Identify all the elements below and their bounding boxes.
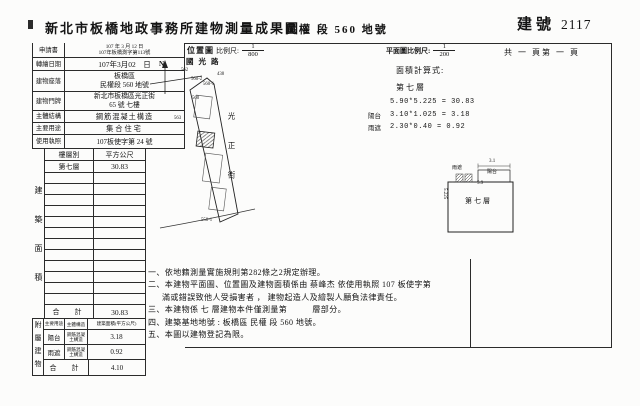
floor-table-empty-row — [45, 272, 145, 283]
annex-side-label-cell: 附屬建物 — [33, 319, 44, 375]
empty-cell — [45, 206, 94, 216]
street-name-top: 國光路 — [186, 56, 224, 67]
row-label: 使用執照 — [33, 135, 65, 148]
empty-cell — [94, 272, 145, 282]
empty-cell — [45, 239, 94, 249]
bottom-rule — [185, 347, 612, 348]
area-formulas: 5.90*5.225 = 30.83 陽台 3.10*1.025 = 3.18 … — [368, 96, 475, 134]
empty-cell — [45, 195, 94, 205]
note-line: 五、本圖以建物登記為限。 — [148, 329, 478, 341]
address-number: 65 號 七樓 — [109, 101, 140, 110]
row-label: 建物座落 — [33, 71, 65, 91]
empty-cell — [45, 173, 94, 183]
floor-table-empty-row — [45, 261, 145, 272]
row-label: 轉繪日期 — [33, 58, 65, 70]
empty-cell — [94, 195, 145, 205]
empty-cell — [94, 283, 145, 293]
street-name-right: 光正街 — [226, 112, 237, 201]
empty-cell — [45, 283, 94, 293]
annex-use: 陽台 — [44, 330, 65, 344]
empty-cell — [45, 184, 94, 194]
table-row-floor7: 第七層 30.83 — [45, 161, 145, 173]
annex-total-row: 合 計 4.10 — [44, 360, 145, 375]
formula-balcony: 陽台 3.10*1.025 = 3.18 — [368, 109, 475, 122]
empty-cell — [94, 184, 145, 194]
annex-area: 0.92 — [88, 345, 145, 359]
building-number-value: 2117 — [555, 17, 592, 33]
plan-scale-fraction: 1 200 — [433, 43, 455, 59]
lot-number: 563 — [174, 116, 181, 121]
plan-scale: 平面圖比例尺: 1 200 — [386, 43, 455, 59]
scan-mark — [28, 20, 33, 29]
annex-table-body: 主要用途 主體構造 建築面積(平方公尺) 陽台 鋼筋混凝土構造 3.18 雨遮 … — [44, 319, 145, 375]
lot-number: 560 — [192, 96, 199, 101]
total-label: 合 計 — [45, 305, 94, 319]
annex-header-row: 主要用途 主體構造 建築面積(平方公尺) — [44, 319, 145, 330]
floor-table-header: 樓層別 平方公尺 — [45, 149, 145, 161]
plan-scale-numerator: 1 — [433, 43, 455, 50]
empty-cell — [45, 272, 94, 282]
floor-table-total-row: 合 計 30.83 — [45, 305, 145, 319]
floor-plan-svg — [440, 160, 590, 250]
calc-title: 面積計算式: — [396, 65, 444, 76]
formula-expression: 2.30*0.40 = 0.92 — [390, 123, 465, 131]
floor-table-empty-row — [45, 228, 145, 239]
floor-area: 30.83 — [94, 161, 145, 172]
note-line: 滿或錯誤致他人受損害者 ， 建物起造人及繪製人願負法律責任。 — [148, 292, 478, 304]
notes-block: 一、依地籍測量實施規則第282條之2規定辦理。 二、本建物平面圖、位置圖及建物面… — [148, 267, 478, 341]
plan-canopy-label: 雨遮 — [452, 164, 462, 171]
annex-table: 附屬建物 主要用途 主體構造 建築面積(平方公尺) 陽台 鋼筋混凝土構造 3.1… — [32, 318, 146, 376]
formula-main: 5.90*5.225 = 30.83 — [368, 96, 475, 109]
subject-building-hatched — [196, 131, 215, 148]
floor-table-empty-row — [45, 250, 145, 261]
building-outline — [209, 187, 227, 211]
survey-document-page: 新北市板橋地政事務所建物測量成果圖 民權 段 560 地號 建號 2117 申請… — [0, 0, 640, 406]
plan-scale-denominator: 200 — [433, 50, 455, 59]
area-col-header: 平方公尺 — [94, 149, 145, 160]
building-outline — [202, 153, 222, 183]
formula-expression: 5.90*5.225 = 30.83 — [390, 98, 475, 106]
floor-name: 第七層 — [45, 161, 94, 172]
plan-scale-label: 平面圖比例尺: — [386, 46, 430, 56]
annex-col-use: 主要用途 — [44, 319, 65, 329]
floor-col-header: 樓層別 — [45, 149, 94, 160]
page-count: 共 一 頁第 一 頁 — [504, 47, 580, 58]
lot-number: 560-1 — [203, 82, 214, 87]
page-title: 新北市板橋地政事務所建物測量成果圖 — [45, 18, 300, 37]
empty-cell — [45, 217, 94, 227]
formula-prefix: 雨遮 — [368, 122, 390, 132]
formula-canopy: 雨遮 2.30*0.40 = 0.92 — [368, 121, 475, 134]
row-label: 主體結構 — [33, 111, 65, 122]
canopy-hatched — [456, 174, 463, 182]
row-label: 申請書 — [33, 43, 65, 57]
canopy-hatched — [465, 174, 472, 182]
calc-floor: 第七層 — [396, 82, 426, 93]
empty-cell — [94, 206, 145, 216]
note-line: 二、本建物平面圖、位置圖及建物面積係由 蔡峰杰 依使用執照 107 板使字第 — [148, 279, 478, 291]
location-district: 板橋區 — [114, 72, 135, 82]
floor-area-table: 樓層別 平方公尺 第七層 30.83 合 計 30.83 — [44, 148, 146, 320]
annex-structure: 鋼筋混凝土構造 — [65, 330, 88, 344]
empty-cell — [94, 217, 145, 227]
annex-area: 3.18 — [88, 330, 145, 344]
floor-table-empty-row — [45, 294, 145, 305]
empty-cell — [94, 250, 145, 260]
location-lot: 民權段 560 地號 — [100, 81, 149, 91]
lot-number: 438 — [217, 72, 224, 77]
floor-area-side-label: 建築面積 — [33, 186, 44, 302]
empty-cell — [45, 294, 94, 304]
lot-number: 562 — [181, 68, 188, 73]
empty-cell — [94, 294, 145, 304]
floor-table-empty-row — [45, 184, 145, 195]
plan-dim-top: 5.9 — [477, 181, 483, 186]
main-floor-outline — [448, 182, 513, 232]
total-area: 30.83 — [94, 305, 145, 319]
address-street: 新北市板橋區光正街 — [94, 92, 155, 101]
empty-cell — [94, 261, 145, 271]
floor-table-empty-row — [45, 283, 145, 294]
floor-table-empty-row — [45, 173, 145, 184]
plan-balcony-label: 陽台 — [487, 168, 497, 175]
floor-table-empty-row — [45, 206, 145, 217]
building-number-label: 建號 — [517, 13, 555, 34]
building-number: 建號 2117 — [517, 13, 592, 34]
annex-use: 雨遮 — [44, 345, 65, 359]
annex-col-area: 建築面積(平方公尺) — [88, 319, 145, 329]
note-line: 一、依地籍測量實施規則第282條之2規定辦理。 — [148, 267, 478, 279]
row-label: 建物門牌 — [33, 92, 65, 110]
scale-numerator: 1 — [242, 43, 264, 50]
application-number: 107年板橋測字第113號 — [99, 50, 151, 56]
floor-table-empty-row — [45, 239, 145, 250]
empty-cell — [45, 228, 94, 238]
annex-side-label: 附屬建物 — [33, 321, 43, 373]
lot-number: 560-2 — [191, 77, 202, 82]
table-row-canopy: 雨遮 鋼筋混凝土構造 0.92 — [44, 345, 145, 360]
plan-floor-label: 第七層 — [465, 196, 492, 206]
formula-expression: 3.10*1.025 = 3.18 — [390, 111, 470, 119]
annex-col-structure: 主體構造 — [65, 319, 88, 329]
empty-cell — [45, 250, 94, 260]
empty-cell — [94, 239, 145, 249]
empty-cell — [94, 228, 145, 238]
table-row-balcony: 陽台 鋼筋混凝土構造 3.18 — [44, 330, 145, 345]
empty-cell — [45, 261, 94, 271]
formula-prefix: 陽台 — [368, 110, 390, 120]
right-border — [611, 43, 612, 348]
lot-number: 558-1 — [201, 218, 212, 223]
floor-table-empty-row — [45, 217, 145, 228]
note-line: 四、建築基地地號 : 板橋區 民權 段 560 地號。 — [148, 317, 478, 329]
empty-cell — [94, 173, 145, 183]
row-label: 主要用途 — [33, 123, 65, 134]
floor-table-empty-row — [45, 195, 145, 206]
annex-structure: 鋼筋混凝土構造 — [65, 345, 88, 359]
north-label: N — [159, 60, 164, 68]
note-line: 三、本建物係 七 層建物本件僅測量第 層部分。 — [148, 304, 478, 316]
plan-dim-left: 5.225 — [442, 188, 447, 199]
land-section-label: 民權 段 560 地號 — [286, 21, 388, 37]
plan-balcony-dim: 3.1 — [489, 159, 495, 164]
annex-total-label: 合 計 — [44, 360, 89, 375]
annex-total-value: 4.10 — [89, 360, 145, 375]
